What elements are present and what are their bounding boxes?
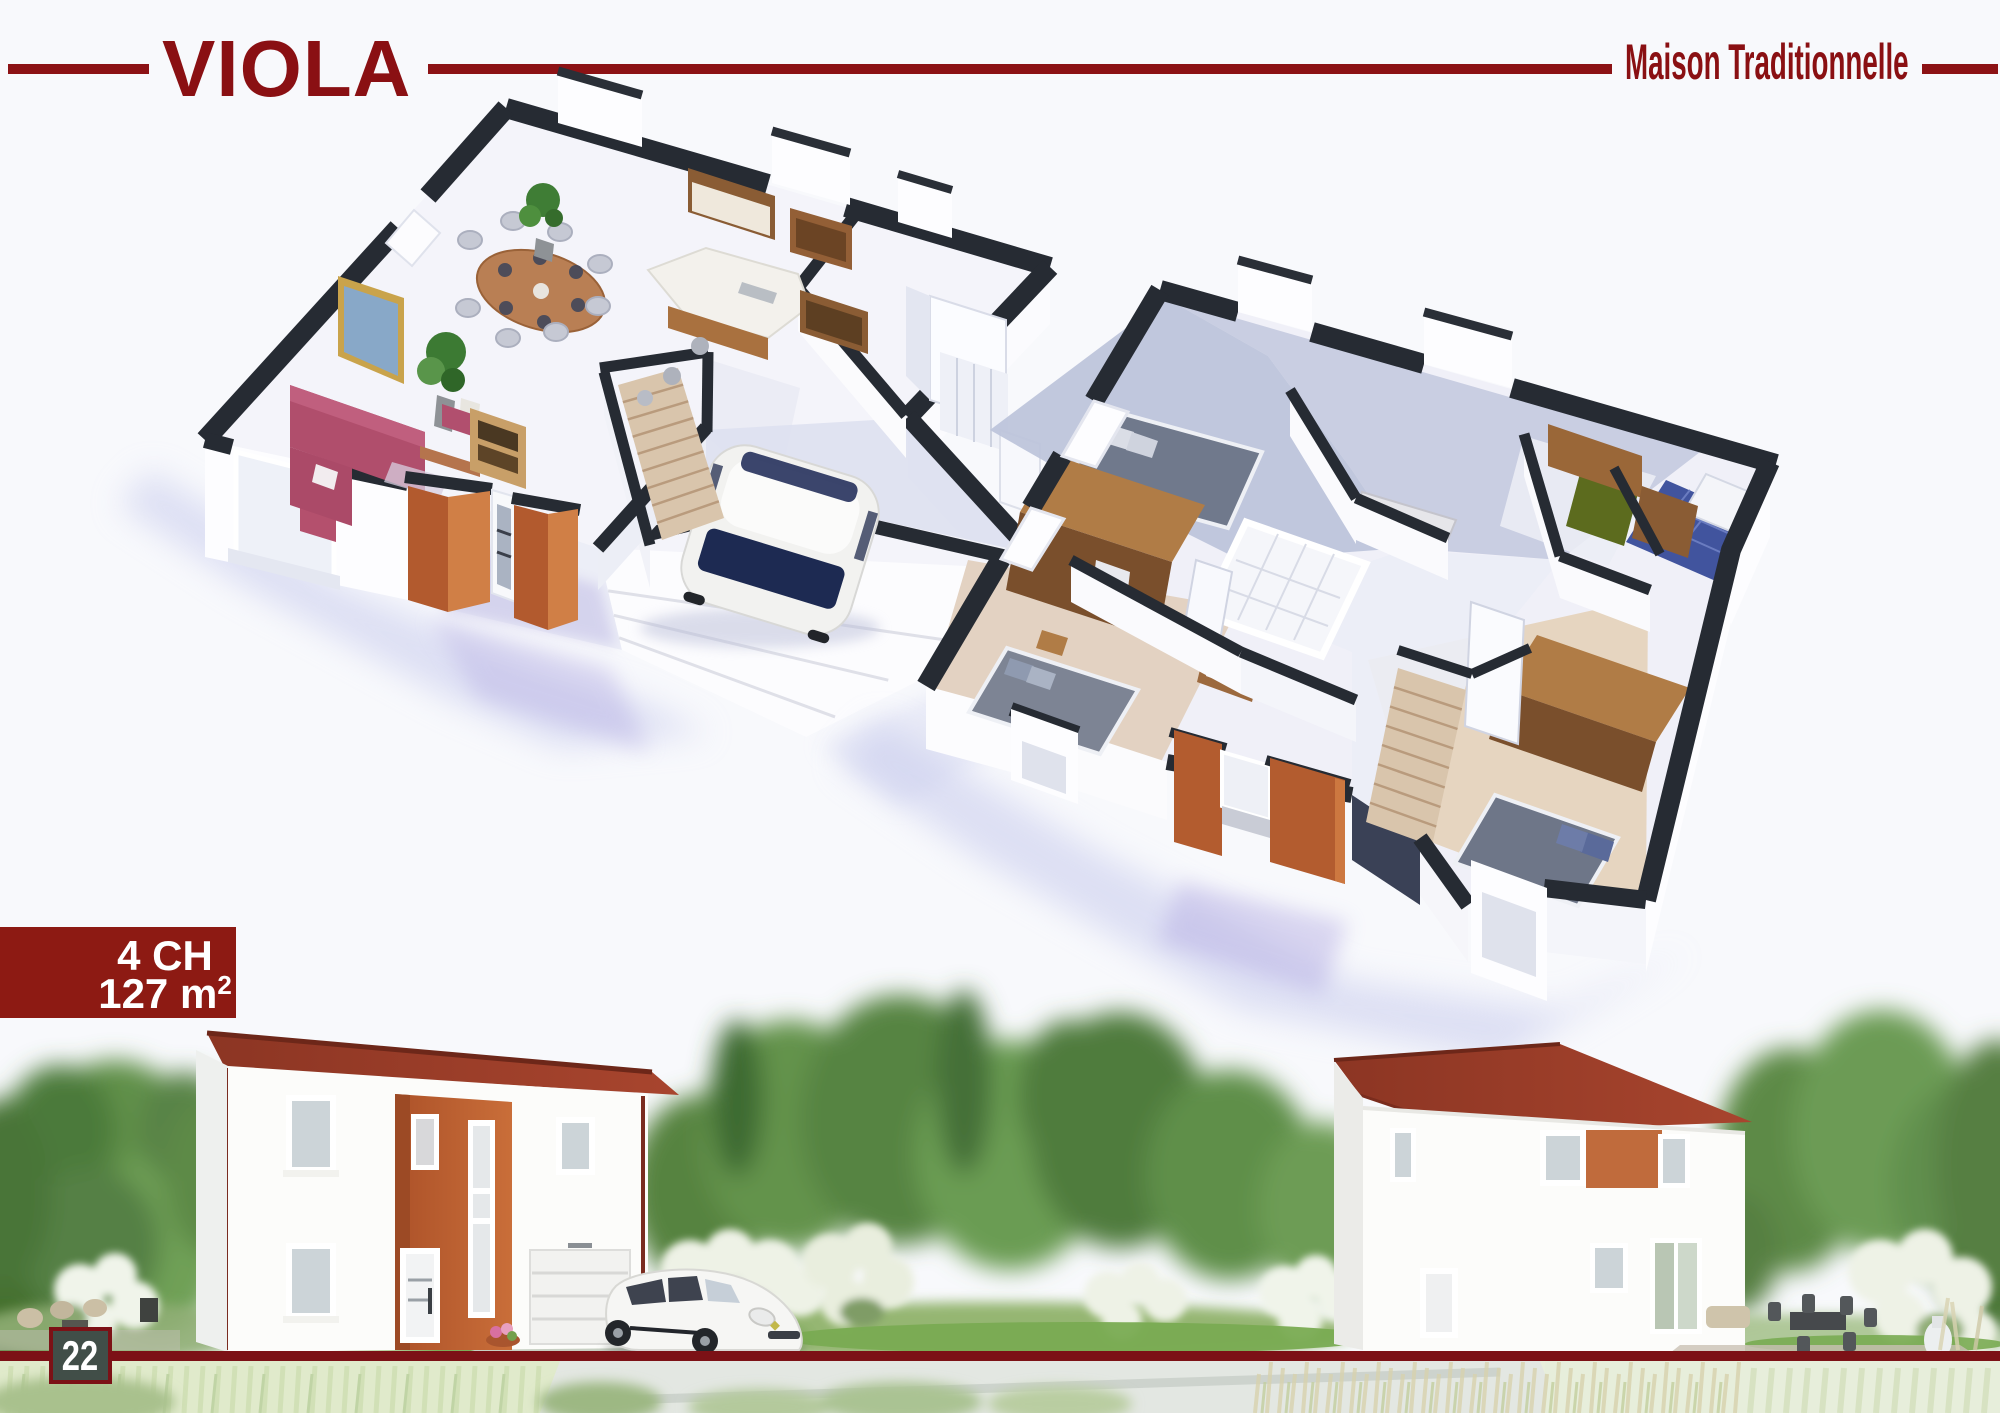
svg-text:VIOLA: VIOLA	[162, 24, 411, 113]
svg-text:127 m2: 127 m2	[98, 970, 232, 1017]
svg-text:Maison Traditionnelle: Maison Traditionnelle	[1625, 33, 1909, 90]
svg-text:22: 22	[62, 1332, 98, 1379]
